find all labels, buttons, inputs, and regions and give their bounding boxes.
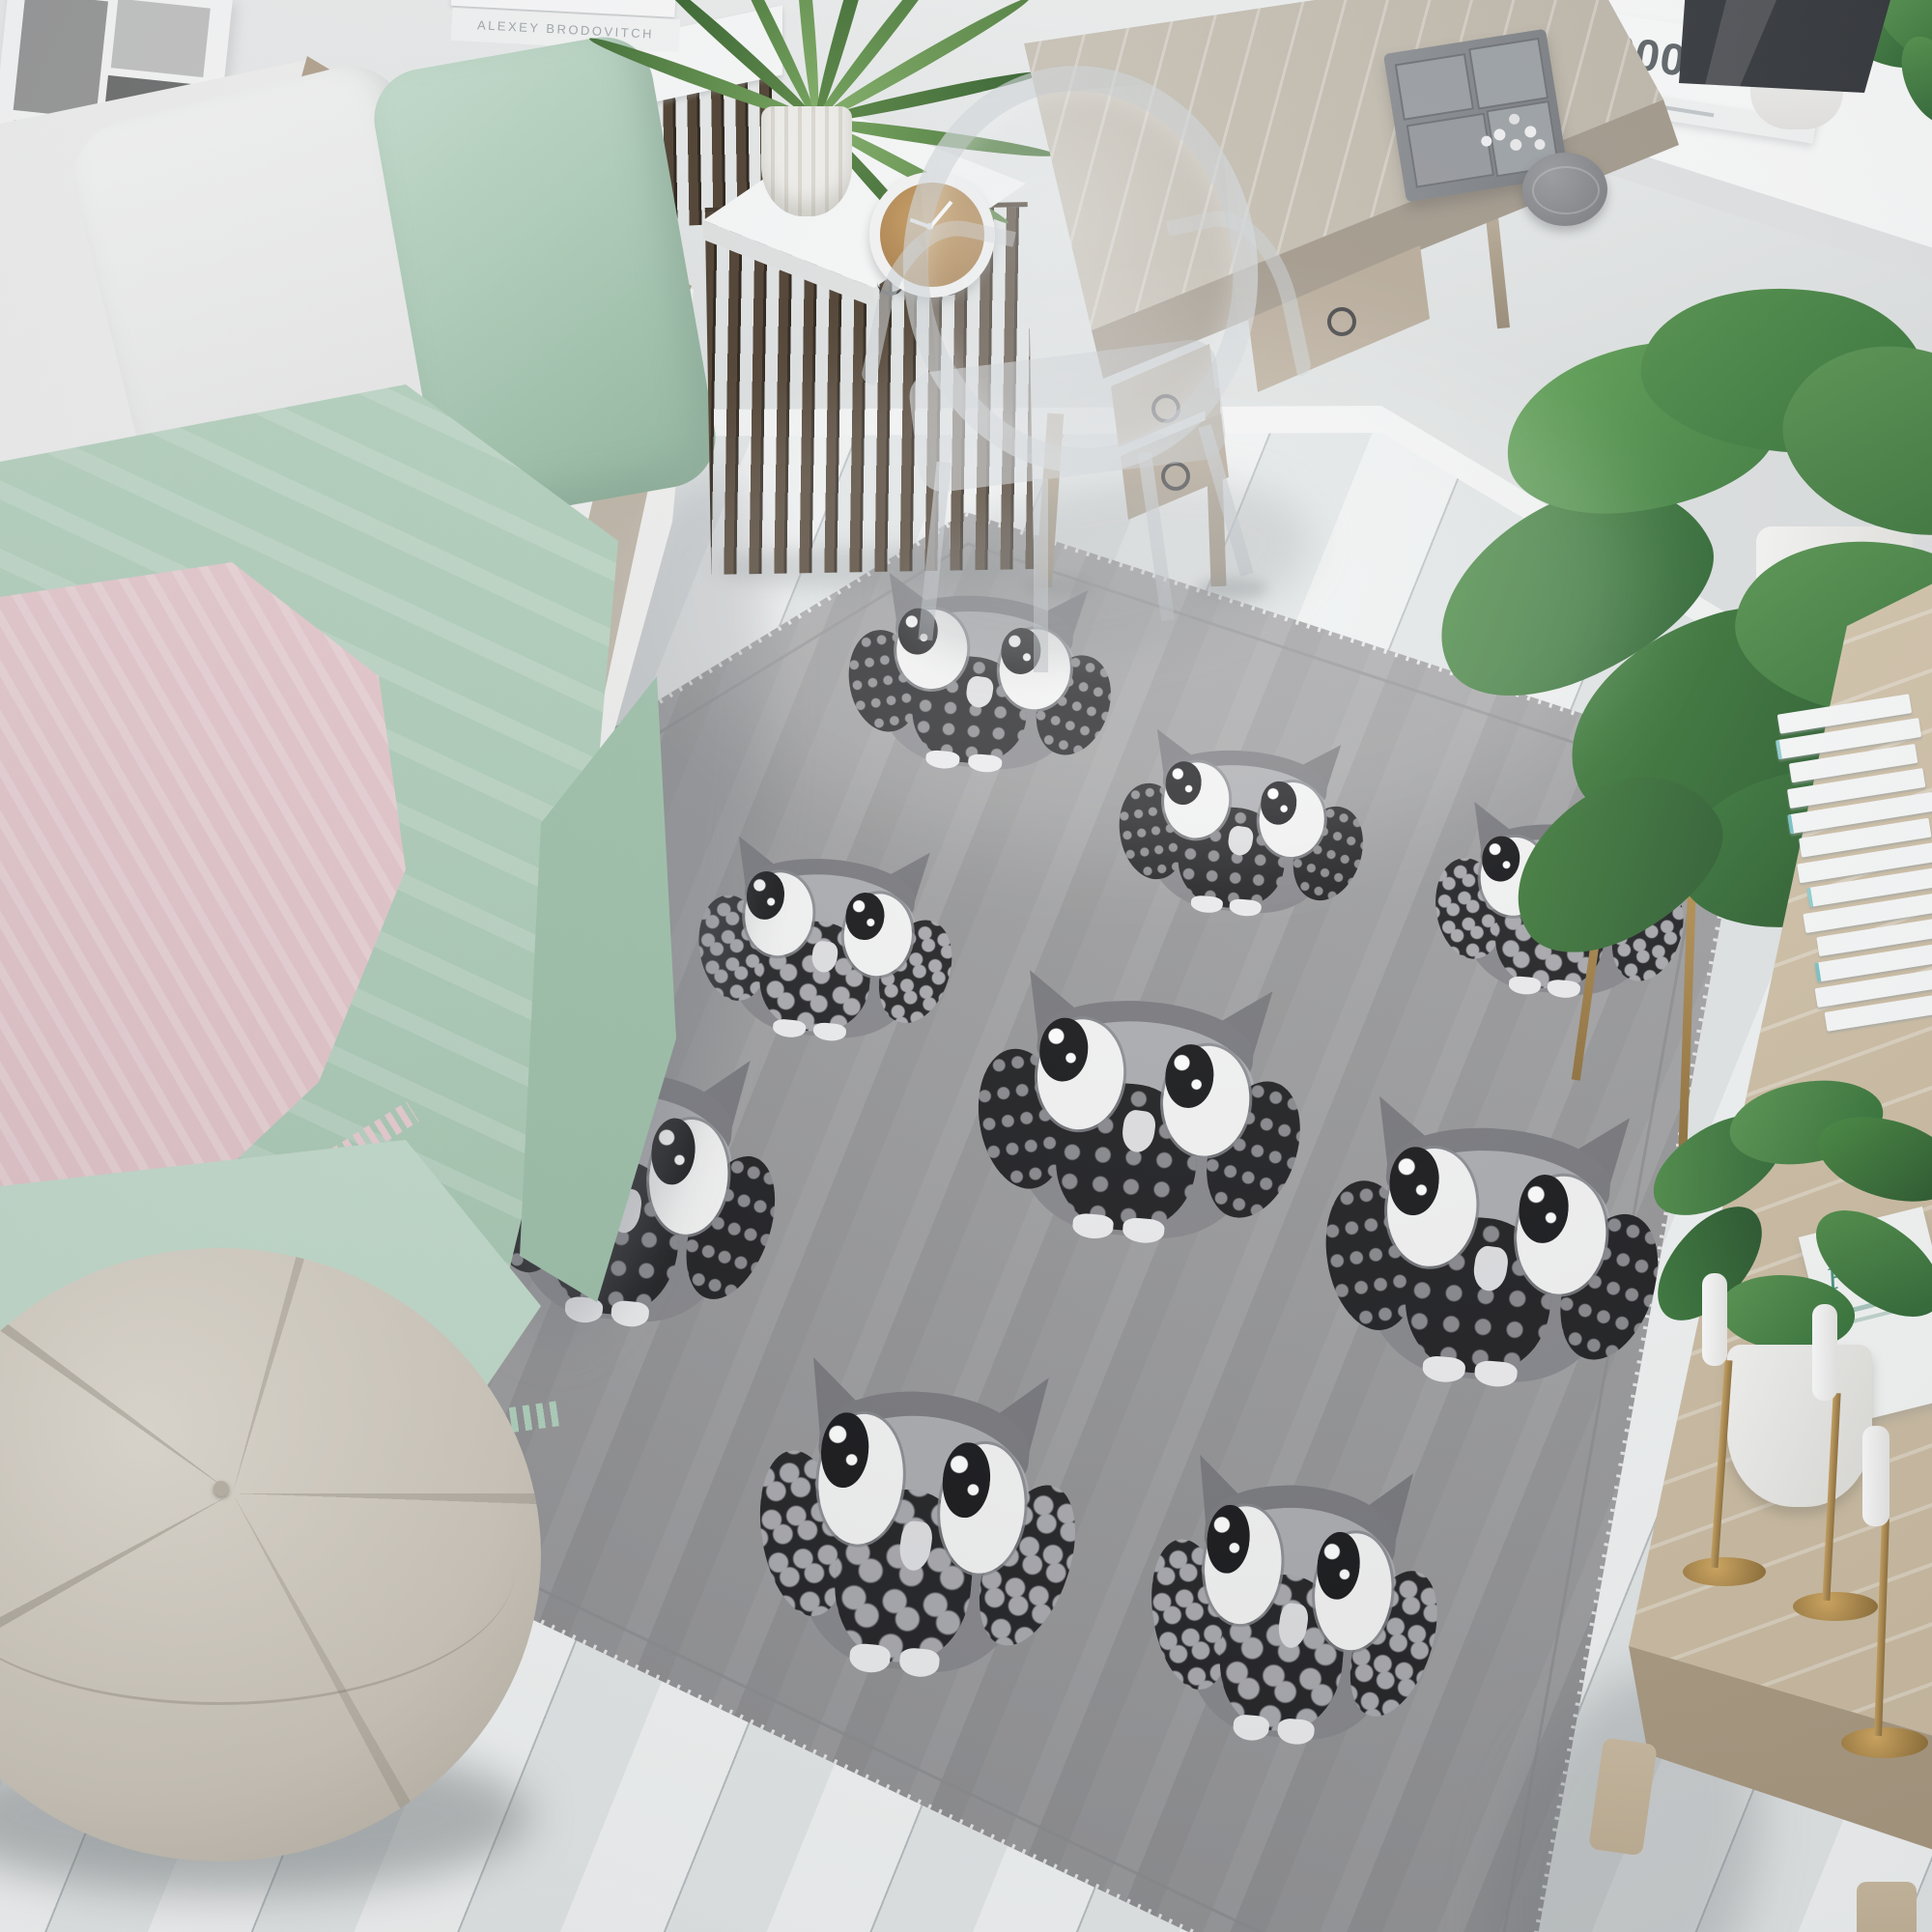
owl-foot (1277, 1718, 1316, 1746)
candlestick-base (1683, 1557, 1766, 1586)
owl-foot (1508, 976, 1542, 995)
owl-foot (967, 753, 1003, 774)
poster-photo (111, 0, 211, 77)
table-leg (1857, 1882, 1917, 1932)
owl-foot (849, 1643, 892, 1674)
candle (1812, 1304, 1837, 1401)
owl-foot (1547, 980, 1580, 999)
round-trinket-box (1522, 153, 1607, 226)
owl-foot (1071, 1212, 1115, 1239)
drawer-ring-pull (1327, 307, 1356, 336)
chair-leg (1034, 479, 1048, 672)
owl-foot (812, 1021, 846, 1041)
organizer-compartment (1406, 113, 1494, 188)
owl-foot (1229, 898, 1262, 917)
owl-foot (1122, 1217, 1166, 1244)
candlestick-base (1793, 1592, 1878, 1621)
owl-foot (1232, 1714, 1270, 1742)
rug-owl (1143, 1452, 1446, 1755)
bedroom-scene: 1000 K (0, 0, 1932, 1932)
plant-pot-ribbed (761, 106, 852, 216)
trinket-box-lid-line (1532, 166, 1600, 214)
rug-owl (1317, 1093, 1668, 1400)
owl-foot (898, 1647, 941, 1678)
owl-foot (925, 750, 961, 770)
rug-owl (1113, 726, 1369, 925)
owl-foot (1421, 1355, 1465, 1384)
table-plant-pot (1727, 1345, 1872, 1507)
owl-foot (611, 1300, 650, 1328)
rug-owl (970, 967, 1310, 1255)
poster-photo (14, 0, 108, 119)
candle (1702, 1273, 1727, 1366)
rug-owl (751, 1354, 1086, 1690)
owl-foot (773, 1018, 807, 1038)
organizer-compartment (1468, 38, 1548, 110)
owl-foot (1474, 1359, 1519, 1388)
book-alexey-title: ALEXEY BRODOVITCH (477, 17, 655, 42)
owl-foot (1190, 895, 1223, 914)
organizer-compartment (1395, 53, 1474, 121)
candlestick-base (1841, 1727, 1928, 1758)
candle (1862, 1426, 1889, 1526)
